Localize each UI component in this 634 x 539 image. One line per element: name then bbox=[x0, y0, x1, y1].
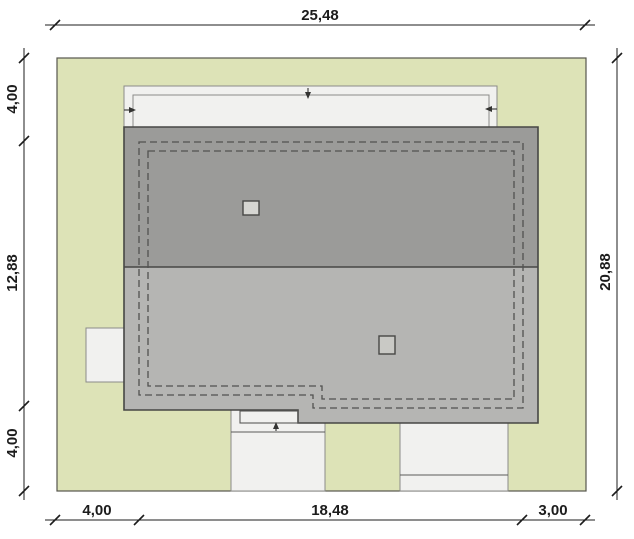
dim-label-left-bottom: 4,00 bbox=[4, 428, 21, 457]
dim-label-top-total: 25,48 bbox=[301, 7, 339, 24]
chimney-lower bbox=[379, 336, 395, 354]
dim-label-left-middle: 12,88 bbox=[4, 254, 21, 292]
dim-label-right-total: 20,88 bbox=[597, 253, 614, 291]
dim-label-left-top: 4,00 bbox=[4, 84, 21, 113]
site-plan-canvas: 25,48 4,00 18,48 3,00 4,00 12,88 4,00 20… bbox=[0, 0, 634, 539]
site-plan-drawing: 25,48 4,00 18,48 3,00 4,00 12,88 4,00 20… bbox=[0, 0, 634, 539]
chimney-upper bbox=[243, 201, 259, 215]
dimension-top: 25,48 bbox=[45, 7, 595, 30]
bottom-terrace bbox=[400, 423, 508, 491]
dim-label-bottom-left: 4,00 bbox=[82, 502, 111, 519]
dim-label-bottom-middle: 18,48 bbox=[311, 502, 349, 519]
left-annex bbox=[86, 328, 124, 382]
roof-upper-slope bbox=[124, 127, 538, 267]
top-canopy bbox=[124, 86, 497, 127]
dimension-left: 4,00 12,88 4,00 bbox=[4, 48, 29, 500]
dimension-right: 20,88 bbox=[597, 48, 622, 500]
dim-label-bottom-right: 3,00 bbox=[538, 502, 567, 519]
dimension-bottom: 4,00 18,48 3,00 bbox=[45, 502, 595, 525]
